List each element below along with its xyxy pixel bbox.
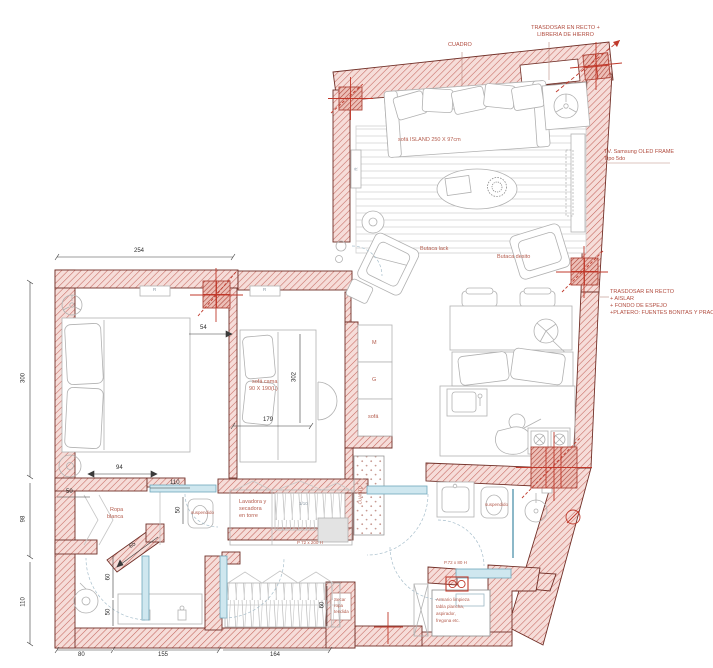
- dim-94: 94: [116, 465, 123, 472]
- dim-155: 155: [158, 652, 168, 659]
- label-armario-3: aspirador,: [436, 611, 456, 616]
- dim-300: 300: [20, 373, 27, 383]
- label-armario-4: fregona etc.: [436, 618, 460, 623]
- label-tv-1: TV. Samsung OLED FRAME: [604, 149, 674, 156]
- dim-50-b: 50: [175, 507, 182, 514]
- dim-302: 302: [291, 372, 298, 382]
- label-radiator-living: R: [353, 167, 358, 170]
- label-closet-sofa: sofá: [368, 414, 378, 421]
- label-sofa-island: sofá ISLAND 250 X 97cm: [398, 137, 461, 144]
- dim-50-a: 50: [66, 489, 73, 496]
- floorplan-drawing: [0, 0, 713, 668]
- label-closet-m: M: [372, 340, 377, 347]
- dim-80: 80: [78, 652, 85, 659]
- label-sofa-cama-1: sofá cama: [252, 379, 277, 386]
- label-sofa-cama-2: 90 X 190(L): [249, 386, 278, 393]
- dim-54: 54: [200, 325, 207, 332]
- label-suspendido-bath: suspendido: [485, 502, 508, 507]
- label-tv-2: Tipo 5do: [604, 156, 625, 163]
- label-lavadora-1: Lavadora y: [239, 499, 266, 506]
- label-armario-1: Armario limpieza: [436, 597, 470, 602]
- dim-254: 254: [134, 248, 144, 255]
- label-lavadora-3: en torre: [239, 513, 258, 520]
- living-room-furniture: [345, 79, 590, 304]
- dim-50-c: 50: [105, 609, 112, 616]
- dim-179: 179: [263, 417, 273, 424]
- label-trasdosar-right-3: + FONDO DE ESPEJO: [610, 303, 667, 310]
- label-ratio: 1/10: [299, 501, 308, 506]
- label-butaca-right: Butaca desito: [497, 254, 530, 261]
- dim-98: 98: [20, 516, 27, 523]
- label-armario-2: tabla plancha,: [436, 604, 464, 609]
- label-closet-g: G: [372, 377, 376, 384]
- label-trasdosar-right-2: + AISLAR: [610, 296, 634, 303]
- label-radiator-room2: R: [263, 287, 266, 292]
- label-cuadro: CUADRO: [448, 42, 472, 49]
- label-door-armario: P.72 x 80 H: [444, 560, 467, 565]
- label-lavadora-2: secadora: [239, 506, 262, 513]
- label-trasdosar-top-2: LIBRERIA DE HIERRO: [518, 32, 613, 39]
- bedroom-furniture: [59, 150, 361, 477]
- label-secar-2: ropa: [334, 603, 343, 608]
- label-cuarto: CUARTO: [357, 486, 362, 505]
- dim-110-left: 110: [20, 597, 27, 607]
- floorplan-canvas: TRASDOSAR EN RECTO + LIBRERIA DE HIERRO …: [0, 0, 713, 668]
- dim-164: 164: [270, 652, 280, 659]
- label-trasdosar-right-1: TRASDOSAR EN RECTO: [610, 289, 674, 296]
- label-secar-3: tendida: [334, 609, 349, 614]
- dim-60-b: 60: [319, 602, 326, 609]
- label-trasdosar-top-1: TRASDOSAR EN RECTO +: [518, 25, 613, 32]
- label-trasdosar-right-4: +PLATERO: FUENTES BONITAS Y PRACTICO: [610, 310, 713, 317]
- label-radiator-bedroom: R: [153, 287, 156, 292]
- label-suspendido-wc: suspendido: [191, 510, 214, 515]
- label-door-hall: P 72 x 200 H: [297, 540, 323, 545]
- label-secar-1: Secar: [334, 597, 346, 602]
- dining-kitchen-furniture: [440, 288, 575, 456]
- label-butaca-left: Butaca lack: [420, 246, 448, 253]
- label-ropa-1: Ropa: [110, 507, 123, 514]
- dim-110-door: 110: [170, 480, 180, 487]
- dim-60-a: 60: [105, 574, 112, 581]
- label-ropa-2: blanca: [107, 514, 123, 521]
